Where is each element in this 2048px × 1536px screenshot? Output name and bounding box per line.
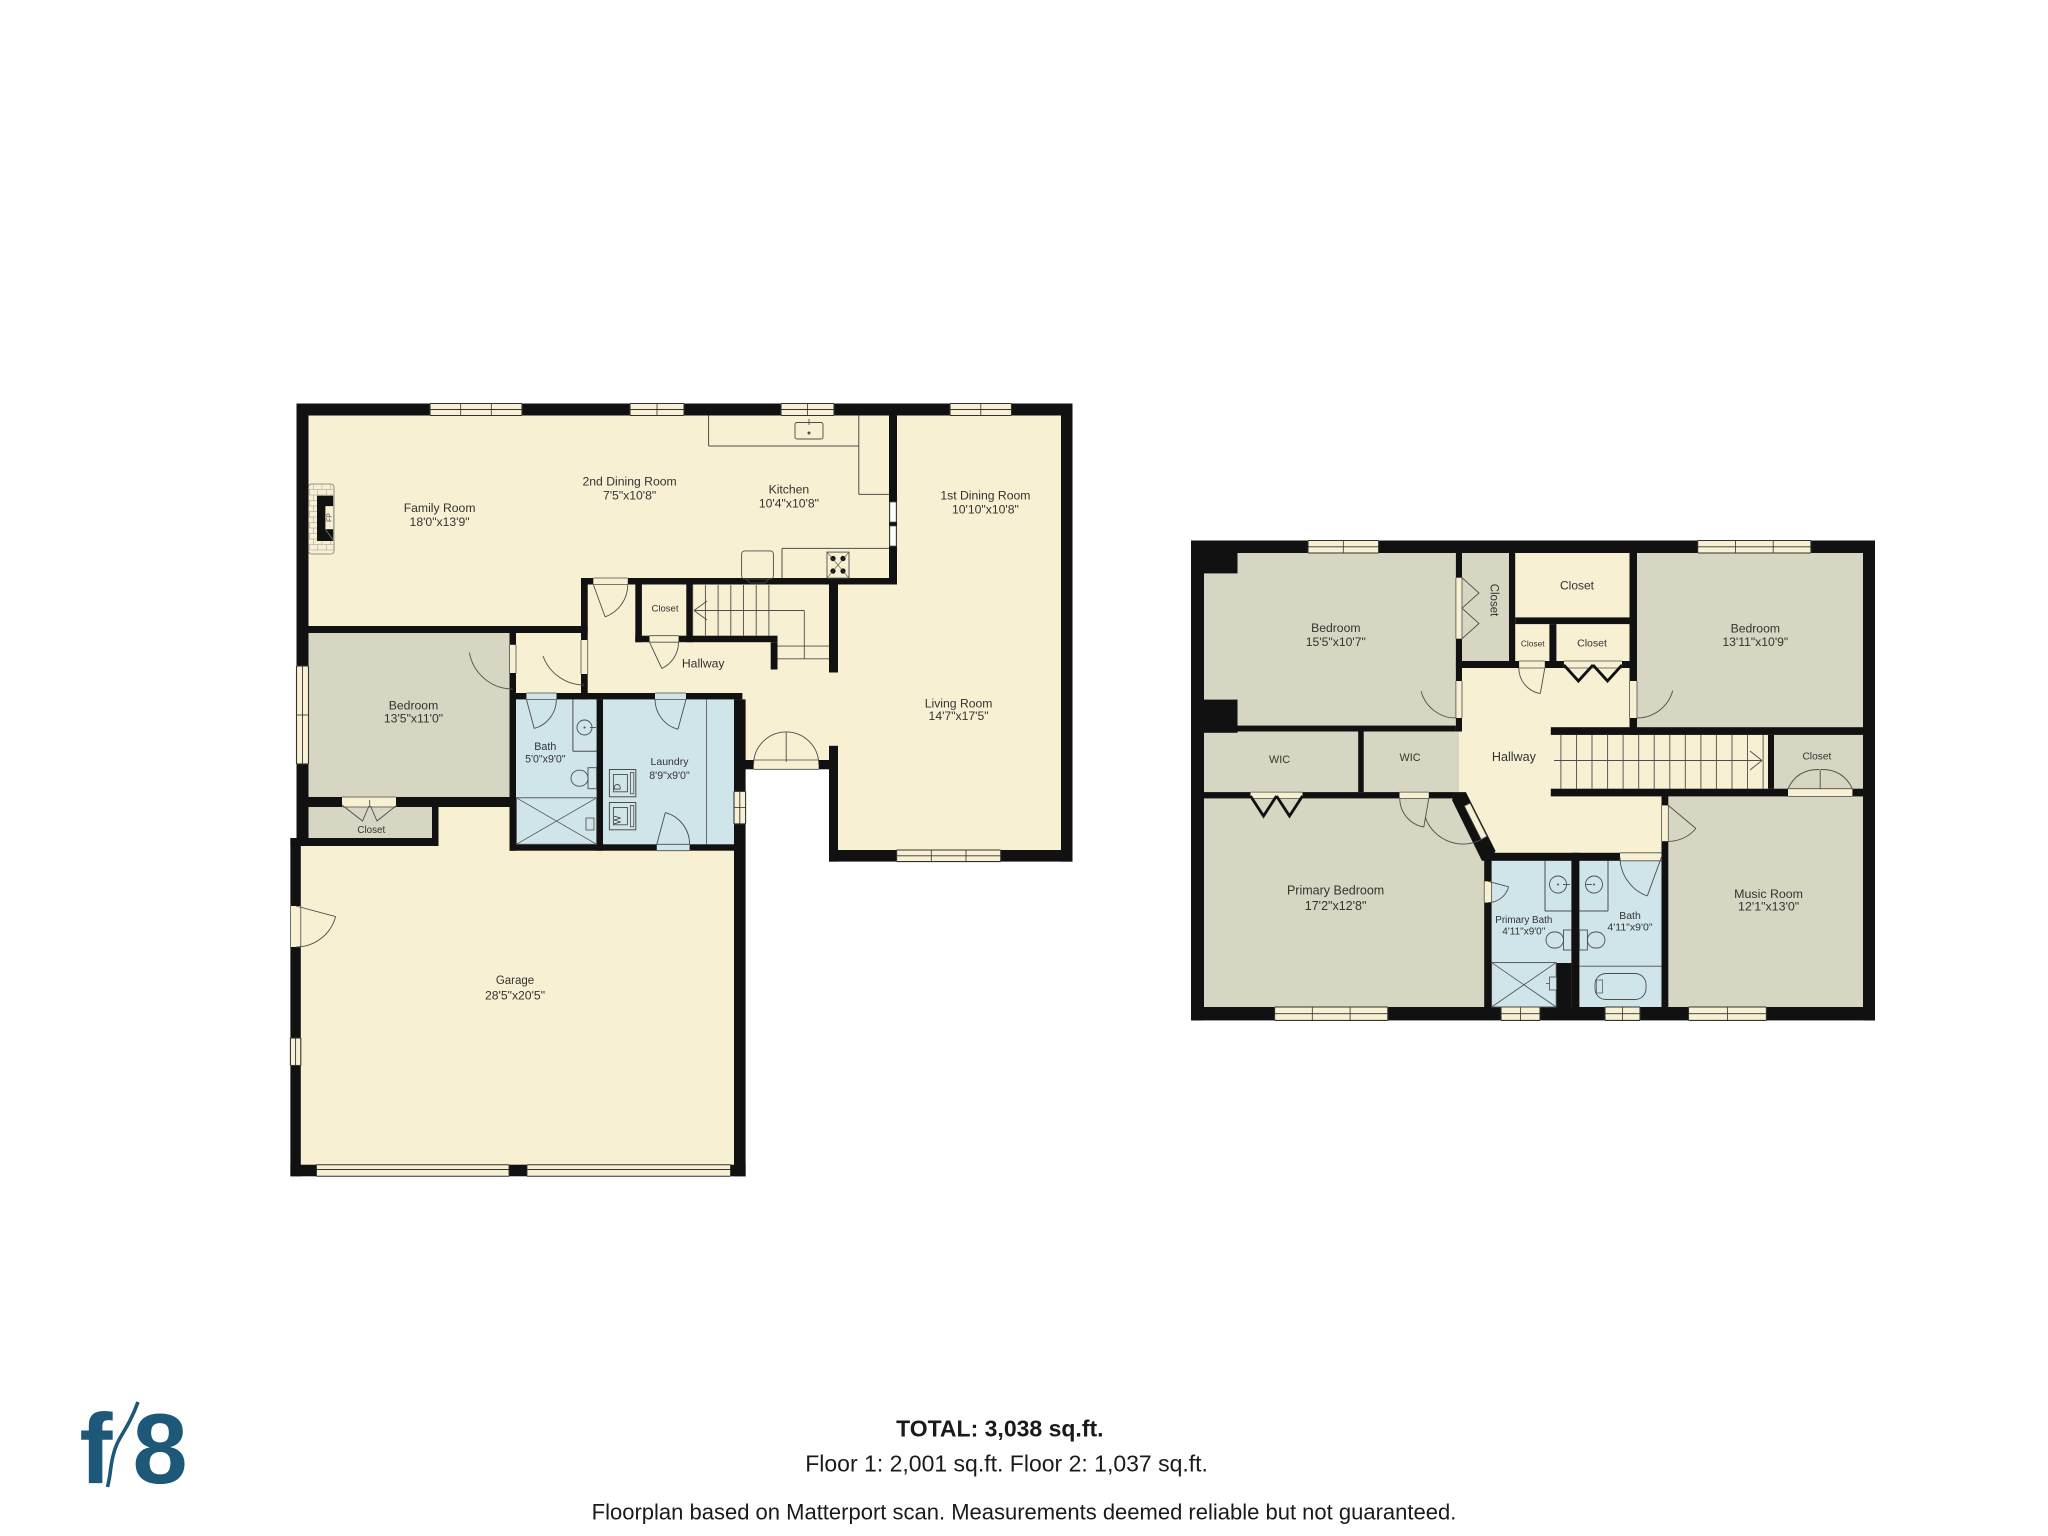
svg-text:f: f: [80, 1393, 114, 1504]
svg-text:Closet: Closet: [1560, 579, 1595, 593]
svg-text:Laundry: Laundry: [651, 756, 690, 768]
svg-text:18'0"x13'9": 18'0"x13'9": [410, 515, 470, 529]
svg-text:TOTAL: 3,038 sq.ft.: TOTAL: 3,038 sq.ft.: [896, 1416, 1103, 1442]
svg-text:Bath: Bath: [1619, 910, 1641, 922]
svg-text:13'11"x10'9": 13'11"x10'9": [1722, 635, 1788, 649]
svg-text:Closet: Closet: [1802, 752, 1831, 763]
svg-text:5'0"x9'0": 5'0"x9'0": [525, 754, 566, 766]
svg-text:Hallway: Hallway: [682, 657, 726, 671]
svg-text:2nd Dining Room: 2nd Dining Room: [583, 474, 677, 488]
svg-text:W: W: [613, 815, 623, 824]
svg-text:Closet: Closet: [357, 825, 385, 836]
svg-text:WIC: WIC: [1400, 752, 1421, 764]
svg-text:4'11"x9'0": 4'11"x9'0": [1607, 921, 1652, 933]
svg-text:Bath: Bath: [534, 741, 556, 753]
svg-text:Bedroom: Bedroom: [389, 698, 438, 712]
svg-text:Bedroom: Bedroom: [1731, 622, 1780, 636]
svg-text:Family Room: Family Room: [404, 501, 476, 515]
svg-text:Hallway: Hallway: [1492, 750, 1537, 764]
svg-text:1st Dining Room: 1st Dining Room: [940, 488, 1030, 502]
svg-text:Garage: Garage: [496, 975, 534, 987]
svg-text:12'1"x13'0": 12'1"x13'0": [1738, 900, 1799, 914]
svg-text:10'4"x10'8": 10'4"x10'8": [759, 497, 819, 511]
svg-text:Primary Bath: Primary Bath: [1495, 915, 1552, 926]
svg-text:Floor 1: 2,001 sq.ft. Floor 2:: Floor 1: 2,001 sq.ft. Floor 2: 1,037 sq.…: [805, 1451, 1208, 1477]
svg-text:13'5"x11'0": 13'5"x11'0": [384, 712, 443, 726]
svg-text:Floorplan based on Matterport: Floorplan based on Matterport scan. Meas…: [592, 1500, 1457, 1525]
svg-text:Closet: Closet: [1577, 638, 1607, 650]
svg-text:28'5"x20'5": 28'5"x20'5": [485, 989, 545, 1003]
svg-text:10'10"x10'8": 10'10"x10'8": [952, 503, 1019, 517]
svg-text:17'2"x12'8": 17'2"x12'8": [1305, 899, 1367, 913]
svg-text:4'11"x9'0": 4'11"x9'0": [1502, 926, 1545, 937]
svg-text:8: 8: [132, 1393, 187, 1504]
svg-text:Closet: Closet: [652, 604, 679, 615]
svg-text:FP: FP: [327, 513, 334, 522]
svg-text:D: D: [613, 783, 623, 790]
svg-text:Bedroom: Bedroom: [1311, 621, 1360, 635]
svg-text:Kitchen: Kitchen: [769, 482, 810, 496]
svg-text:14'7"x17'5": 14'7"x17'5": [929, 709, 989, 723]
svg-text:Closet: Closet: [1521, 638, 1545, 648]
svg-text:WIC: WIC: [1269, 754, 1290, 766]
svg-text:8'9"x9'0": 8'9"x9'0": [649, 770, 690, 782]
svg-text:Primary Bedroom: Primary Bedroom: [1287, 884, 1384, 898]
svg-text:15'5"x10'7": 15'5"x10'7": [1306, 635, 1366, 649]
svg-text:7'5"x10'8": 7'5"x10'8": [603, 488, 656, 502]
svg-text:Closet: Closet: [1488, 584, 1500, 617]
